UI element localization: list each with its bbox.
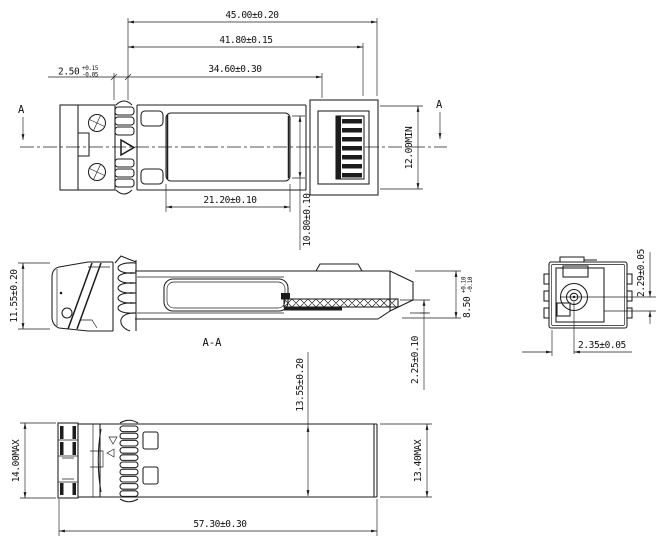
dim-window-length: 21.20±0.10 [166, 195, 290, 207]
dim-max-height: 14.00MAX [11, 423, 25, 498]
dim-text-45: 45.00±0.20 [225, 10, 279, 21]
unlock-arrow-icon [107, 449, 114, 457]
dim-pcb-height: 8.50 +0.10 -0.10 [456, 271, 474, 318]
dim-text-2-50: 2.50 [58, 67, 80, 78]
dim-body-height: 13.40MAX [413, 424, 427, 497]
top-view: A A [18, 10, 447, 250]
emi-fingers-top [115, 101, 134, 194]
latch-tab [141, 111, 163, 126]
top-body [137, 105, 306, 190]
bottom-body [100, 424, 377, 497]
dim-tol-lower: -0.10 [467, 276, 474, 293]
dim-text-10-80: 10.80±0.10 [302, 193, 313, 247]
dim-body-length: 34.60±0.30 [111, 64, 322, 80]
phillips-screw-icon [86, 161, 107, 182]
dim-text-13-40max: 13.40MAX [413, 439, 424, 482]
dim-axis-horizontal: 2.35±0.05 [522, 340, 632, 352]
mounting-hole [143, 432, 158, 449]
section-arrow-right: A [436, 99, 443, 139]
mechanical-drawing: A A [0, 0, 667, 558]
gold-finger-stripes [342, 119, 362, 178]
dim-text-8-50: 8.50 [462, 296, 473, 318]
dim-text-41-80: 41.80±0.15 [219, 35, 272, 46]
dim-text-2-29: 2.29±0.05 [636, 249, 647, 297]
bottom-view: 14.00MAX 13.40MAX 57.30±0.30 [11, 420, 432, 536]
latch-tab [141, 169, 163, 184]
drawing-sheet: A A [0, 0, 667, 558]
dim-shield-length: 41.80±0.15 [128, 35, 363, 47]
section-arrow-left: A [18, 104, 25, 140]
pcb-section [281, 293, 398, 311]
dim-min-clearance: 12.00MIN [404, 106, 418, 189]
section-body [135, 260, 413, 331]
dim-front-offset: 2.50 +0.15 -0.05 [48, 65, 114, 79]
dim-text-21-20: 21.20±0.10 [203, 195, 257, 206]
section-label: A-A [203, 337, 223, 349]
front-nose-block [60, 105, 115, 190]
mounting-hole [143, 467, 158, 484]
dim-text-13-55: 13.55±0.20 [295, 358, 306, 412]
dim-section-height: 11.55±0.20 [9, 263, 23, 329]
direction-arrow-icon [121, 140, 134, 155]
dim-text-11-55: 11.55±0.20 [9, 269, 20, 323]
rear-connector [310, 100, 378, 195]
unlock-arrow-icon [109, 437, 117, 444]
dim-overall-length: 45.00±0.20 [128, 10, 377, 22]
emi-finger-comb [120, 420, 138, 502]
bail-latch [52, 262, 113, 331]
dim-text-57-30: 57.30±0.30 [193, 519, 247, 530]
section-label-right: A [436, 99, 443, 111]
dim-axis-vertical: 2.29±0.05 [636, 249, 650, 324]
end-view: 2.29±0.05 2.35±0.05 [522, 249, 656, 356]
dim-tol-lower: -0.05 [82, 72, 99, 79]
emi-spring-fingers [115, 256, 136, 331]
housing-front [78, 424, 103, 497]
dim-text-34-60: 34.60±0.30 [208, 64, 262, 75]
dim-text-2-25: 2.25±0.10 [410, 335, 421, 384]
section-label-left: A [18, 104, 25, 116]
dim-bottom-overall-length: 57.30±0.30 [59, 519, 377, 531]
bail-cross-section [58, 423, 78, 498]
dim-text-14-00max: 14.00MAX [11, 439, 22, 482]
dim-text-2-35: 2.35±0.05 [578, 340, 626, 351]
latch-pivot [62, 308, 72, 318]
section-view: A-A 11.55±0.20 8.50 +0.10 -0.10 2.25±0.1… [9, 256, 474, 496]
lc-port [556, 266, 604, 322]
dim-pcb-offset: 2.25±0.10 [410, 300, 428, 390]
phillips-screw-icon [86, 112, 107, 133]
dim-text-12-00min: 12.00MIN [404, 126, 415, 169]
